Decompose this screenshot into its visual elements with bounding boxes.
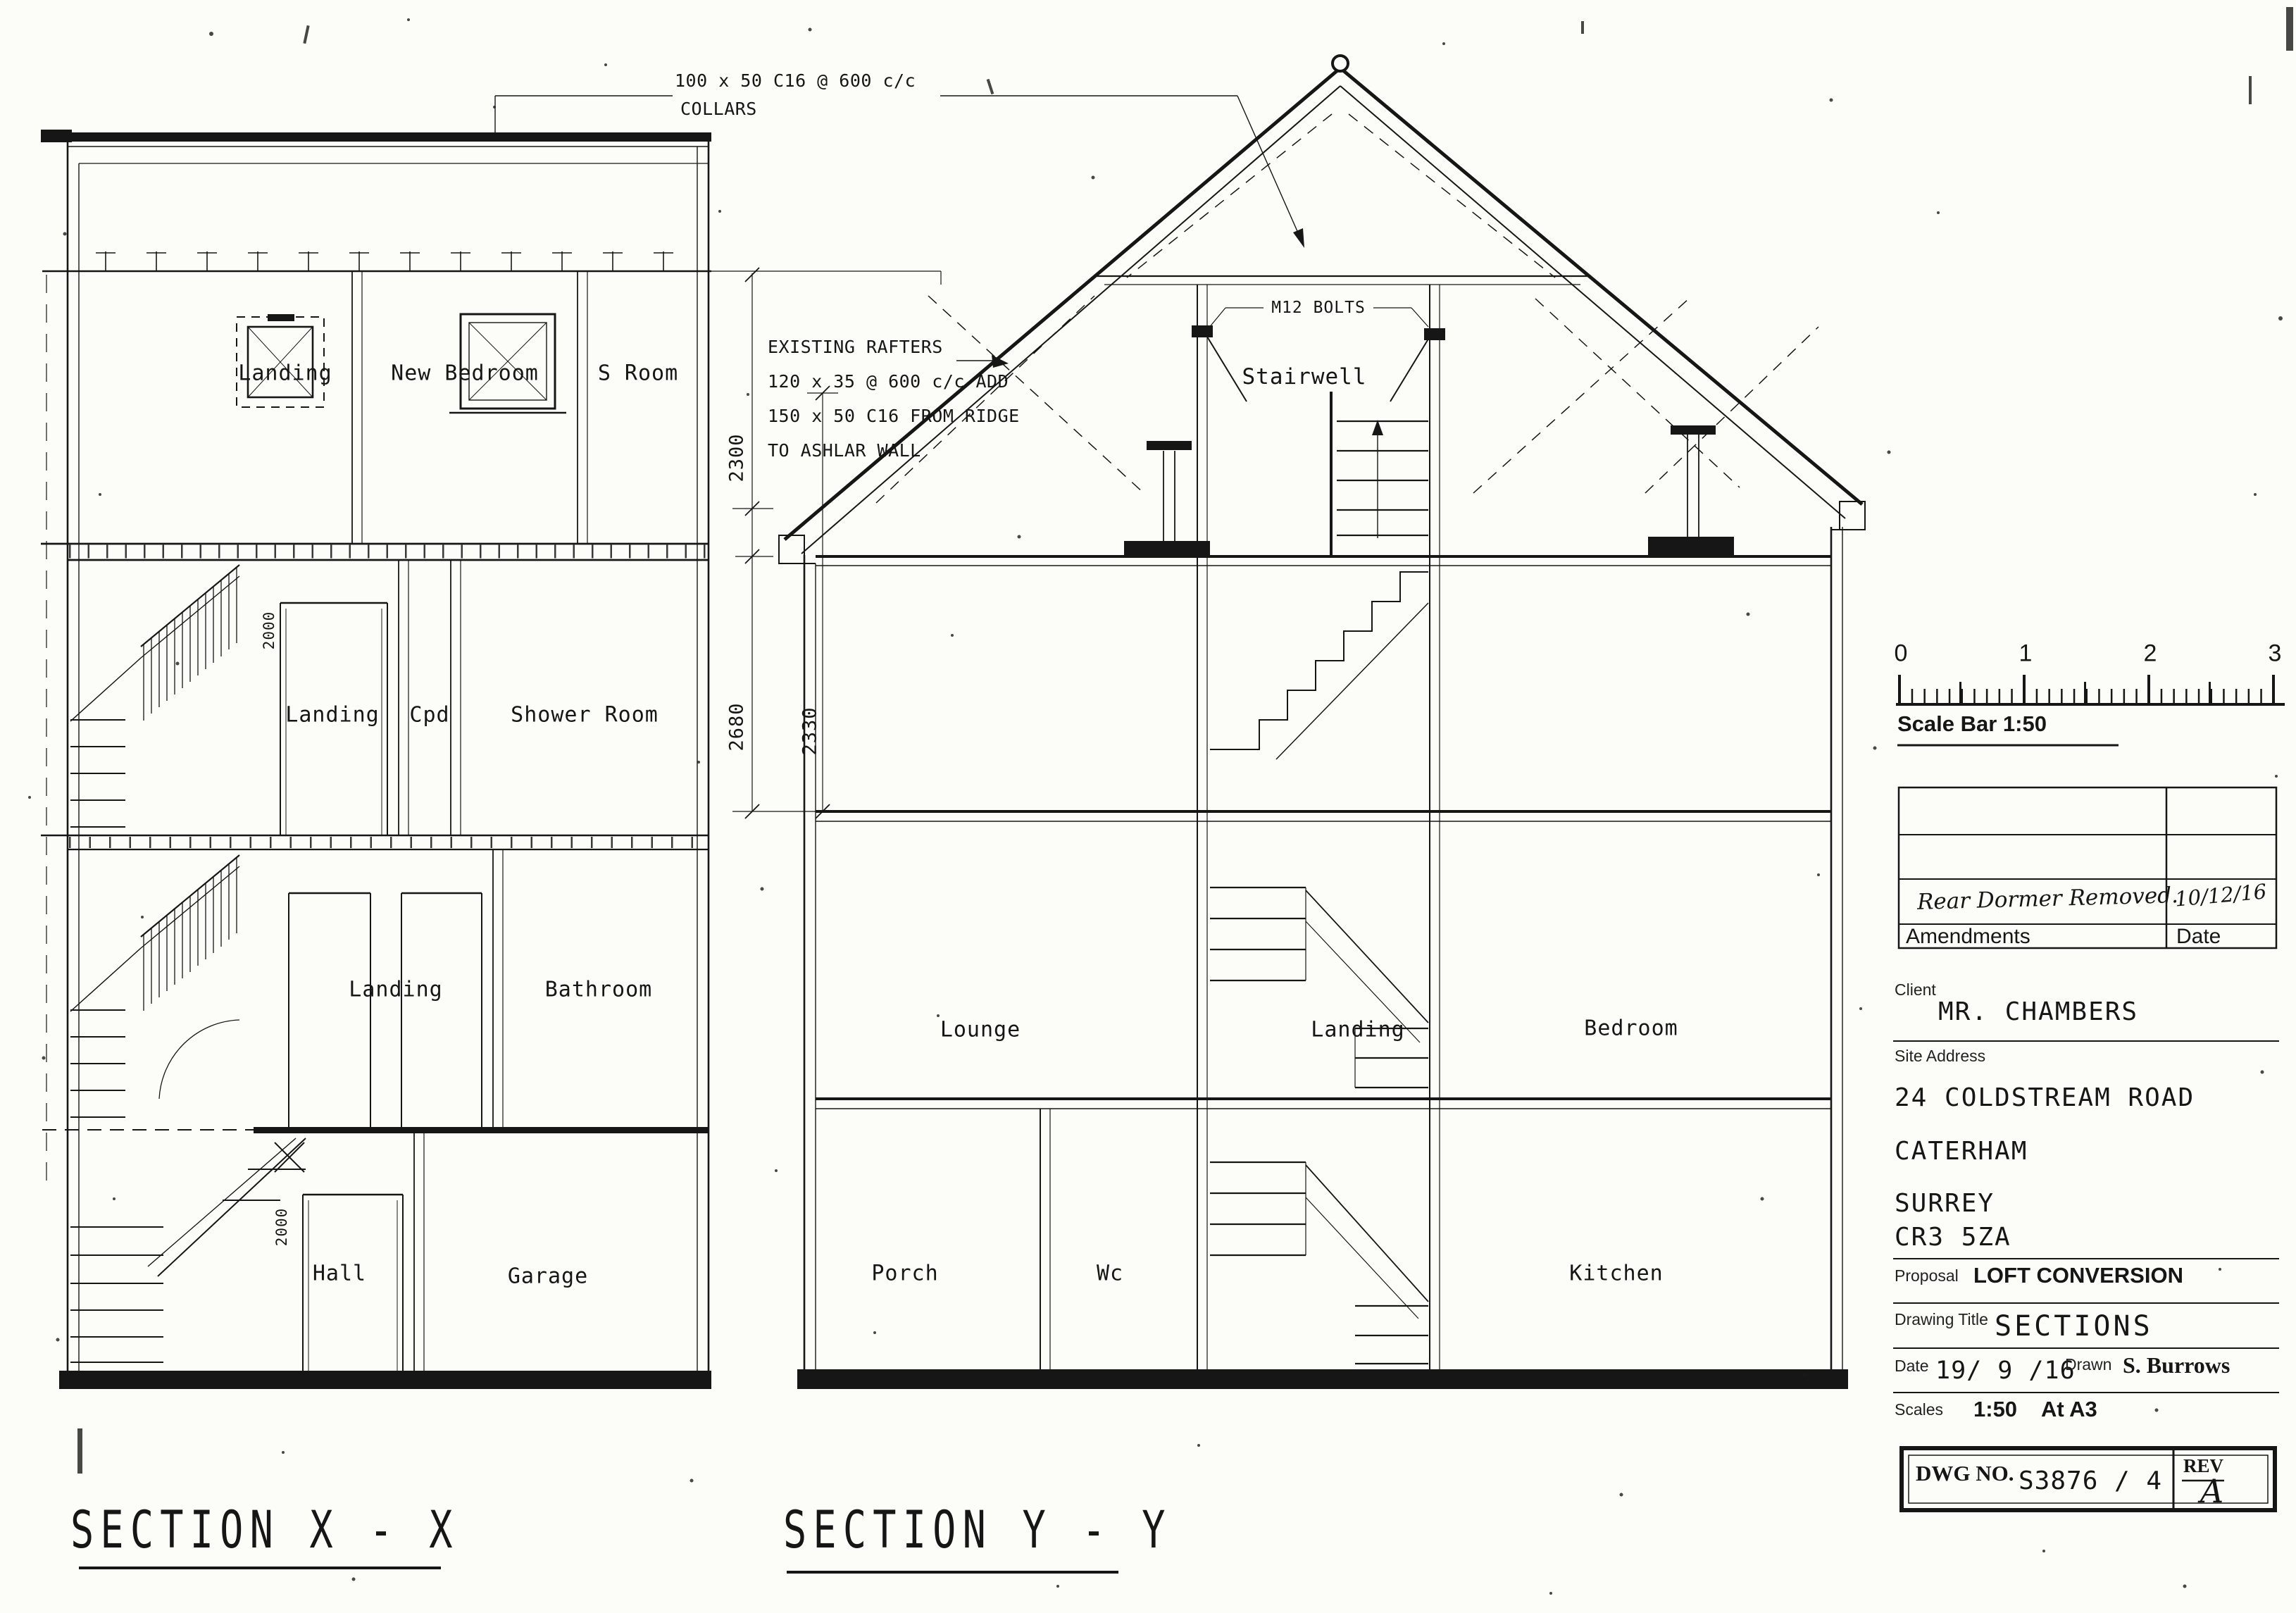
room-x-new-bedroom: New Bedroom [391,361,539,386]
scalebar-tick-0: 0 [1895,640,1908,668]
section-x-title: SECTION X - X [70,1500,459,1560]
rafters-note-line1: EXISTING RAFTERS [768,337,943,357]
site-address-line2: CATERHAM [1895,1137,2028,1166]
section-y-title: SECTION Y - Y [783,1500,1172,1560]
room-y-bedroom: Bedroom [1584,1016,1678,1041]
scalebar-tick-1: 1 [2019,640,2033,668]
date-label: Date [1895,1357,1929,1376]
site-address-line1: 24 COLDSTREAM ROAD [1895,1083,2195,1112]
room-y-kitchen: Kitchen [1569,1262,1663,1286]
drawing-sheet: 100 x 50 C16 @ 600 c/c COLLARS EXISTING … [0,0,2296,1613]
drawn-value: S. Burrows [2123,1352,2230,1378]
scales-label: Scales [1895,1400,1943,1419]
rafters-note-line4: TO ASHLAR WALL [768,440,921,461]
room-y-landing: Landing [1311,1018,1404,1042]
dim-2300: 2300 [726,433,748,482]
drawing-title-value: SECTIONS [1995,1310,2153,1343]
room-y-lounge: Lounge [940,1018,1021,1042]
rev-value: A [2200,1472,2223,1510]
collars-note-line2: COLLARS [680,99,757,119]
room-x-shower-room: Shower Room [511,703,659,728]
room-x-hall: Hall [313,1262,366,1286]
rafters-note-line3: 150 x 50 C16 FROM RIDGE [768,406,1020,426]
room-x-garage: Garage [508,1264,588,1289]
room-y-porch: Porch [871,1262,938,1286]
drawing-title-label: Drawing Title [1895,1310,1988,1329]
dwg-no-value: S3876 / 4 [2019,1466,2162,1495]
scalebar-label: Scale Bar 1:50 [1897,711,2047,737]
room-y-wc: Wc [1097,1262,1123,1286]
site-address-line3: SURREY [1895,1189,1995,1218]
section-x-linework [41,130,941,1389]
dwg-no-label: DWG NO. [1916,1461,2014,1486]
m12-bolts-note: M12 BOLTS [1271,299,1366,317]
room-x-bathroom: Bathroom [545,978,653,1002]
client-label: Client [1895,980,1936,999]
dim-2680: 2680 [726,702,748,751]
room-y-stairwell: Stairwell [1242,364,1367,390]
drawn-label: Drawn [2065,1355,2111,1374]
section-y-linework [779,56,1865,1389]
proposal-value: LOFT CONVERSION [1973,1263,2183,1288]
scalebar-tick-3: 3 [2269,640,2282,668]
rafters-note-line2: 120 x 35 @ 600 c/c ADD [768,371,1009,392]
proposal-label: Proposal [1895,1266,1959,1285]
dim-2000-ground-door: 2000 [273,1208,290,1247]
scales-sheet: At A3 [2041,1397,2097,1422]
dim-2330: 2330 [799,706,821,755]
scalebar-tick-2: 2 [2144,640,2157,668]
room-x-cpd: Cpd [409,703,449,728]
collars-note-line1: 100 x 50 C16 @ 600 c/c [675,70,916,91]
client-value: MR. CHAMBERS [1938,997,2138,1026]
amendments-header: Amendments [1906,925,2030,949]
scales-value: 1:50 [1973,1397,2017,1422]
room-x-loft-landing: Landing [238,361,332,386]
room-x-second-landing: Landing [285,703,379,728]
room-x-first-landing: Landing [349,978,442,1002]
room-x-s-room: S Room [598,361,678,386]
dim-2000-upper-door: 2000 [261,611,277,650]
date-value: 19/ 9 /16 [1935,1357,2076,1385]
amendments-date-header: Date [2176,925,2221,949]
site-address-label: Site Address [1895,1047,1985,1066]
site-address-line4: CR3 5ZA [1895,1223,2011,1252]
